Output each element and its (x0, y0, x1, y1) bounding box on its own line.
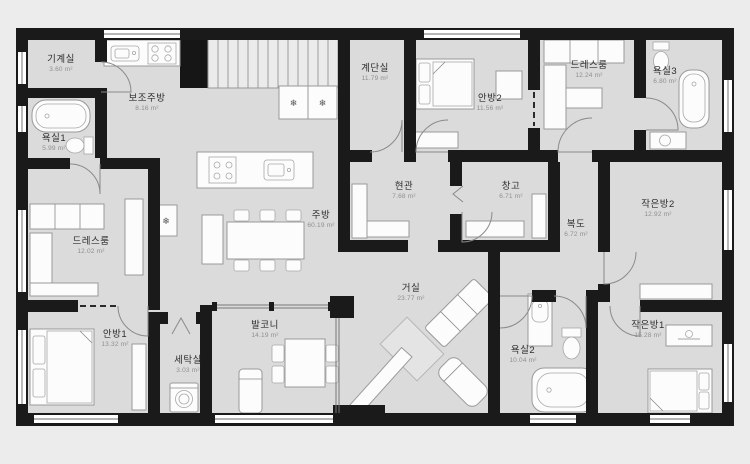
desk-small-room-1 (666, 325, 712, 346)
svg-text:❄: ❄ (290, 98, 298, 108)
kitchen-island (197, 152, 313, 188)
toilet-icon-bath3 (653, 42, 669, 71)
bench-master2 (414, 132, 458, 148)
stove-icon (148, 43, 176, 64)
kitchen-counter (104, 40, 180, 66)
bed-icon-master1 (30, 329, 94, 405)
toilet-icon-bath1 (66, 137, 93, 154)
cabinet-small-room-2 (640, 284, 712, 299)
floor-plan-svg: ❄ ❄ ❄ (0, 0, 750, 464)
bathtub-icon-bath2 (532, 368, 594, 412)
bed-icon-small-room-1 (648, 369, 712, 413)
svg-text:❄: ❄ (319, 98, 327, 108)
sink-icon-bath3 (650, 132, 686, 149)
toilet-icon-bath2 (562, 328, 581, 359)
svg-text:❄: ❄ (162, 216, 170, 226)
floor-plan-stage: ❄ ❄ ❄ (0, 0, 750, 464)
closet-master1 (132, 344, 146, 410)
bed-icon-master2 (416, 59, 474, 109)
bathtub-icon-bath3 (679, 70, 709, 128)
washer-icon (170, 383, 198, 412)
closet-master2 (496, 71, 522, 99)
bathtub-icon-bath1 (32, 100, 90, 132)
